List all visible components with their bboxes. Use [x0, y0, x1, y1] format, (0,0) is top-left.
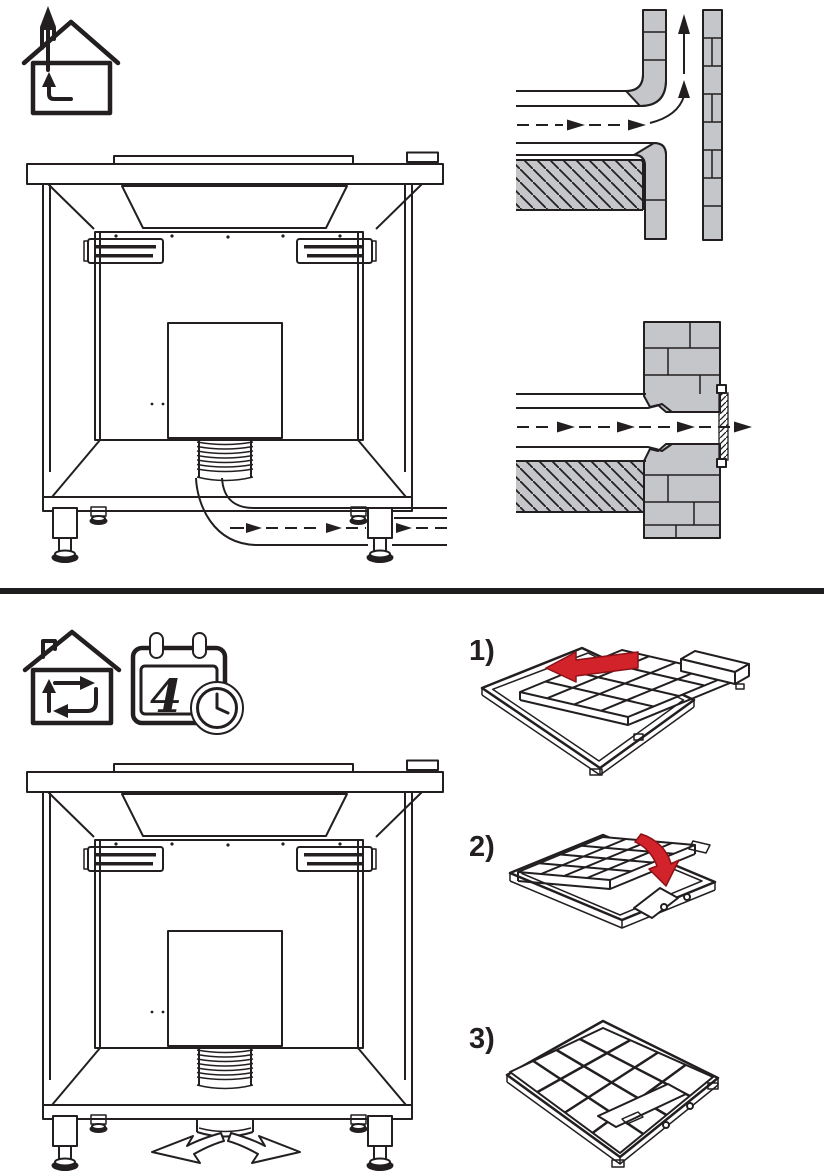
- recirculation-loop-icon: [42, 676, 96, 718]
- house-recirculation-icon: [25, 632, 119, 723]
- step-3-label: 3): [469, 1023, 495, 1055]
- manual-page: 4 1): [0, 0, 824, 1176]
- binder-ring-icon: [150, 633, 163, 658]
- wall-below-duct: [644, 444, 720, 538]
- step-1-illustration: [482, 648, 749, 775]
- section-divider: [0, 588, 824, 594]
- house-exhaust-air-icon: [24, 6, 118, 113]
- step-2-illustration: [510, 834, 715, 928]
- wall-above-duct: [644, 322, 720, 412]
- grease-filter-grid: [510, 1028, 713, 1153]
- clock-icon: [191, 682, 243, 734]
- shaft-inner-wall: [626, 10, 666, 106]
- exhaust-arrow-icon: [40, 6, 56, 27]
- step-1-label: 1): [469, 635, 495, 667]
- exhaust-air-section: [24, 6, 752, 563]
- cabinet-exhaust-drawing: [27, 153, 447, 564]
- step-2-label: 2): [469, 831, 495, 863]
- room-air-arrow-left: [152, 1133, 224, 1163]
- step-3-illustration: [507, 1021, 718, 1167]
- binder-ring-icon: [193, 633, 206, 658]
- manual-illustration: 4 1): [0, 0, 824, 1176]
- airflow-arrows-through: [517, 422, 752, 433]
- airflow-arrows-right: [230, 523, 447, 533]
- cabinet-recirculation-drawing: [27, 761, 443, 1172]
- plinth-diffuser: [152, 1119, 300, 1163]
- filter-change-calendar-icon: 4: [133, 633, 243, 734]
- duct-through-wall-diagram: [516, 322, 752, 538]
- recirculation-section: 4 1): [25, 632, 749, 1171]
- interval-number: 4: [150, 669, 182, 723]
- duct-into-wall-shaft-diagram: [516, 10, 722, 240]
- room-air-arrow-right: [228, 1133, 300, 1163]
- grease-filter-grid: [518, 837, 710, 889]
